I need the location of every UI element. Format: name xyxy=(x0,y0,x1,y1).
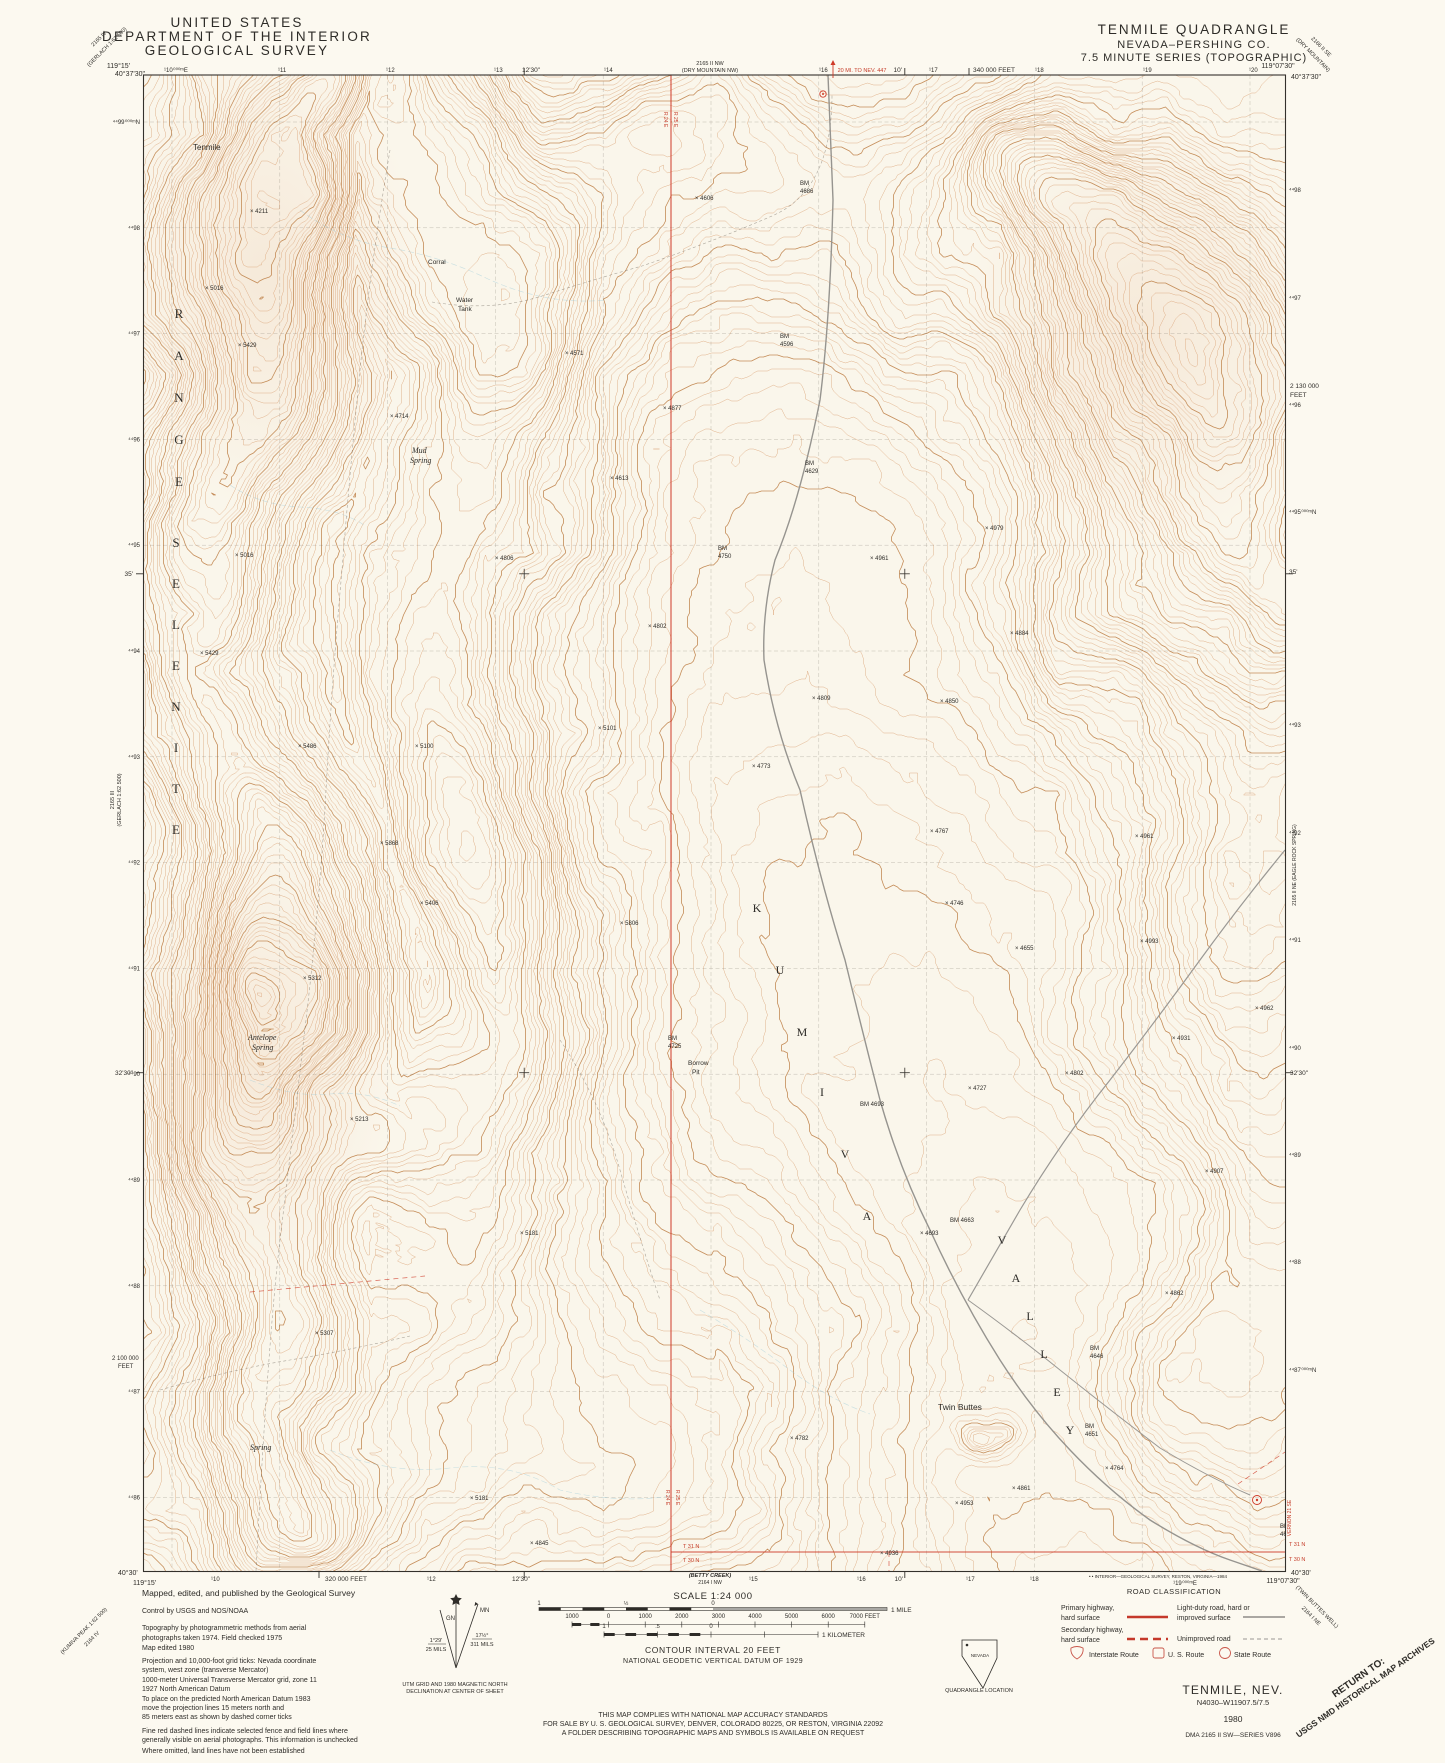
svg-text:¹16: ¹16 xyxy=(819,68,828,74)
svg-text:¹12: ¹12 xyxy=(427,1577,436,1583)
svg-text:4629: 4629 xyxy=(805,469,819,475)
svg-text:311 MILS: 311 MILS xyxy=(470,1642,493,1648)
svg-text:119°07'30": 119°07'30" xyxy=(1266,1577,1300,1585)
svg-text:Antelope: Antelope xyxy=(247,1033,277,1042)
svg-text:move the projection lines 15 m: move the projection lines 15 meters nort… xyxy=(142,1705,284,1712)
svg-text:UTM GRID AND 1980 MAGNETIC NOR: UTM GRID AND 1980 MAGNETIC NORTH xyxy=(402,1682,507,1688)
svg-text:Interstate Route: Interstate Route xyxy=(1089,1652,1139,1659)
svg-text:Mud: Mud xyxy=(411,446,428,455)
svg-text:340 000 FEET: 340 000 FEET xyxy=(973,67,1015,74)
svg-text:I: I xyxy=(820,1085,824,1099)
svg-text:State Route: State Route xyxy=(1234,1652,1271,1659)
svg-text:⁴⁴91: ⁴⁴91 xyxy=(128,965,140,972)
svg-text:A FOLDER DESCRIBING TOPOGRAPHI: A FOLDER DESCRIBING TOPOGRAPHIC MAPS AND… xyxy=(562,1730,865,1737)
svg-text:A: A xyxy=(1012,1271,1021,1285)
svg-text:L: L xyxy=(1026,1309,1033,1323)
svg-text:⁴⁴90: ⁴⁴90 xyxy=(1289,1045,1301,1052)
svg-text:× 5429: × 5429 xyxy=(238,343,257,349)
svg-text:• • INTERIOR—GEOLOGICAL SURVEY: • • INTERIOR—GEOLOGICAL SURVEY, RESTON, … xyxy=(1089,1574,1228,1579)
svg-text:4686: 4686 xyxy=(800,189,814,195)
svg-text:4651: 4651 xyxy=(1085,1432,1099,1438)
svg-text:Where omitted, land lines have: Where omitted, land lines have not been … xyxy=(142,1748,305,1755)
svg-text:DEPARTMENT OF THE INTERIOR: DEPARTMENT OF THE INTERIOR xyxy=(102,29,372,44)
svg-text:Tenmile: Tenmile xyxy=(193,143,221,152)
svg-text:× 4782: × 4782 xyxy=(790,1436,809,1442)
svg-text:× 5806: × 5806 xyxy=(620,921,639,927)
svg-text:32'30": 32'30" xyxy=(1290,1070,1309,1077)
svg-text:BM: BM xyxy=(780,334,789,340)
svg-text:¹17: ¹17 xyxy=(929,68,938,74)
svg-text:119°07'30": 119°07'30" xyxy=(1261,62,1295,70)
svg-text:2164 I NW: 2164 I NW xyxy=(698,1580,722,1586)
svg-text:¹12: ¹12 xyxy=(386,68,395,74)
svg-text:K: K xyxy=(753,901,762,915)
svg-text:2165 III: 2165 III xyxy=(110,790,116,809)
svg-text:35': 35' xyxy=(1289,569,1297,576)
svg-text:THIS MAP COMPLIES WITH NATIONA: THIS MAP COMPLIES WITH NATIONAL MAP ACCU… xyxy=(598,1712,828,1719)
svg-text:⁴⁴94: ⁴⁴94 xyxy=(128,648,140,655)
svg-text:BM: BM xyxy=(1085,1424,1094,1430)
svg-text:× 4979: × 4979 xyxy=(985,526,1004,532)
svg-text:I: I xyxy=(174,740,178,755)
svg-text:¹18: ¹18 xyxy=(1035,68,1044,74)
svg-text:E: E xyxy=(172,658,180,673)
svg-text:× 5429: × 5429 xyxy=(200,651,219,657)
svg-text:U: U xyxy=(776,963,785,977)
svg-text:× 4953: × 4953 xyxy=(955,1501,974,1507)
svg-text:× 4746: × 4746 xyxy=(945,901,964,907)
svg-text:Spring: Spring xyxy=(410,456,431,465)
svg-text:× 4606: × 4606 xyxy=(695,196,714,202)
svg-text:× 4907: × 4907 xyxy=(1205,1169,1224,1175)
svg-text:R 25 E: R 25 E xyxy=(672,112,678,128)
svg-text:× 4845: × 4845 xyxy=(530,1541,549,1547)
svg-text:generally visible on aerial ph: generally visible on aerial photographs.… xyxy=(142,1737,358,1744)
svg-text:× 5016: × 5016 xyxy=(235,553,254,559)
svg-text:1000: 1000 xyxy=(565,1614,579,1620)
svg-text:Primary highway,: Primary highway, xyxy=(1061,1605,1114,1612)
svg-text:119°15': 119°15' xyxy=(107,62,130,70)
svg-text:TENMILE QUADRANGLE: TENMILE QUADRANGLE xyxy=(1098,22,1291,37)
svg-text:V: V xyxy=(998,1233,1007,1247)
svg-text:Topography by photogrammetric: Topography by photogrammetric methods fr… xyxy=(142,1625,307,1632)
svg-text:2 130 000: 2 130 000 xyxy=(1290,383,1319,390)
svg-text:⁴⁴87 ⁰⁰⁰ᵐN: ⁴⁴87 ⁰⁰⁰ᵐN xyxy=(1289,1367,1316,1374)
svg-text:⁴⁴96: ⁴⁴96 xyxy=(1289,402,1301,409)
svg-text:S: S xyxy=(172,535,179,550)
svg-text:2165 II NE (EAGLE ROCK SPRING): 2165 II NE (EAGLE ROCK SPRING) xyxy=(1292,824,1298,906)
svg-text:× 5307: × 5307 xyxy=(315,1331,334,1337)
svg-text:T 30 N: T 30 N xyxy=(683,1558,699,1564)
svg-text:¹19: ¹19 xyxy=(1143,68,1152,74)
svg-text:× 4802: × 4802 xyxy=(1065,1071,1084,1077)
svg-text:× 4806: × 4806 xyxy=(495,556,514,562)
svg-text:17½°: 17½° xyxy=(476,1632,489,1639)
svg-text:E: E xyxy=(1053,1385,1060,1399)
svg-text:T 31 N: T 31 N xyxy=(683,1544,699,1550)
svg-text:× 4571: × 4571 xyxy=(565,351,584,357)
svg-text:T 31 N: T 31 N xyxy=(1289,1542,1305,1548)
svg-text:⁴⁴91: ⁴⁴91 xyxy=(1289,937,1301,944)
svg-text:(BETTY CREEK): (BETTY CREEK) xyxy=(689,1573,732,1579)
svg-text:10': 10' xyxy=(895,1576,903,1583)
svg-text:⁴⁴88: ⁴⁴88 xyxy=(1289,1259,1301,1266)
svg-text:Twin Buttes: Twin Buttes xyxy=(938,1402,982,1412)
svg-text:¹14: ¹14 xyxy=(604,68,613,74)
svg-text:× 4961: × 4961 xyxy=(1135,834,1154,840)
svg-text:⁴⁴97: ⁴⁴97 xyxy=(1289,295,1301,302)
svg-text:⁴⁴96: ⁴⁴96 xyxy=(128,436,140,443)
svg-text:× 5101: × 5101 xyxy=(598,726,617,732)
svg-text:photographs taken 1974. Fiel: photographs taken 1974. Field checked 19… xyxy=(142,1635,282,1642)
svg-text:¹11: ¹11 xyxy=(278,68,287,74)
svg-text:1000-meter Universal Transvers: 1000-meter Universal Transverse Mercator… xyxy=(142,1677,317,1684)
svg-text:GEOLOGICAL SURVEY: GEOLOGICAL SURVEY xyxy=(145,43,329,58)
svg-text:Borrow: Borrow xyxy=(688,1060,709,1067)
svg-text:× 5016: × 5016 xyxy=(205,286,224,292)
svg-text:Tank: Tank xyxy=(458,306,472,313)
svg-text:QUADRANGLE LOCATION: QUADRANGLE LOCATION xyxy=(945,1688,1013,1694)
svg-text:× 5213: × 5213 xyxy=(350,1117,369,1123)
svg-text:2165 II NW: 2165 II NW xyxy=(696,61,724,67)
svg-text:NEVADA–PERSHING CO.: NEVADA–PERSHING CO. xyxy=(1117,39,1270,51)
svg-text:× 4961: × 4961 xyxy=(870,556,889,562)
svg-text:N: N xyxy=(174,390,184,405)
svg-text:L: L xyxy=(172,617,180,632)
svg-text:× 4211: × 4211 xyxy=(250,209,269,215)
svg-text:MN: MN xyxy=(480,1608,489,1614)
svg-text:¹17: ¹17 xyxy=(966,1577,975,1583)
svg-text:⁴⁴93: ⁴⁴93 xyxy=(128,754,140,761)
svg-text:Y: Y xyxy=(1066,1423,1075,1437)
svg-text:× 5181: × 5181 xyxy=(470,1496,489,1502)
svg-text:BM: BM xyxy=(1090,1346,1099,1352)
svg-text:× 4714: × 4714 xyxy=(390,414,409,420)
svg-text:A: A xyxy=(174,348,184,363)
svg-text:⁴⁴97: ⁴⁴97 xyxy=(128,331,140,338)
svg-text:× 4962: × 4962 xyxy=(1255,1006,1274,1012)
svg-text:× 4693: × 4693 xyxy=(920,1231,939,1237)
svg-text:⁴⁴86: ⁴⁴86 xyxy=(128,1494,140,1501)
svg-text:FOR SALE BY U. S. GEOLOGICAL S: FOR SALE BY U. S. GEOLOGICAL SURVEY, DEN… xyxy=(543,1721,883,1728)
svg-text:× 4884: × 4884 xyxy=(1010,631,1029,637)
svg-text:U. S. Route: U. S. Route xyxy=(1168,1652,1204,1659)
svg-text:FEET: FEET xyxy=(1290,392,1307,399)
svg-text:L: L xyxy=(1040,1347,1047,1361)
svg-text:¹10: ¹10 xyxy=(211,1577,220,1583)
svg-text:¹13: ¹13 xyxy=(494,68,503,74)
svg-text:BM: BM xyxy=(668,1036,677,1042)
svg-text:NEVADA: NEVADA xyxy=(971,1653,989,1658)
svg-text:TENMILE, NEV.: TENMILE, NEV. xyxy=(1182,1683,1283,1697)
svg-text:Mapped, edited, and published: Mapped, edited, and published by the Geo… xyxy=(142,1588,356,1598)
svg-text:Unimproved road: Unimproved road xyxy=(1177,1636,1231,1643)
svg-text:1 MILE: 1 MILE xyxy=(891,1607,912,1614)
svg-text:× 4861: × 4861 xyxy=(1012,1486,1031,1492)
svg-text:¹18: ¹18 xyxy=(1030,1577,1039,1583)
svg-text:12'30": 12'30" xyxy=(522,67,541,74)
svg-text:Water: Water xyxy=(456,297,474,304)
svg-text:.5: .5 xyxy=(655,1624,660,1630)
svg-text:4646: 4646 xyxy=(1090,1354,1104,1360)
svg-text:× 4613: × 4613 xyxy=(610,476,629,482)
svg-text:NATIONAL GEODETIC VERTICAL DAT: NATIONAL GEODETIC VERTICAL DATUM OF 1929 xyxy=(623,1658,803,1665)
svg-text:40°30': 40°30' xyxy=(118,1569,138,1577)
svg-text:⁴⁴89: ⁴⁴89 xyxy=(1289,1152,1301,1159)
svg-text:Spring: Spring xyxy=(250,1443,271,1452)
svg-text:⁴⁴95 ⁰⁰⁰ᵐN: ⁴⁴95 ⁰⁰⁰ᵐN xyxy=(1289,509,1316,516)
svg-text:× 4877: × 4877 xyxy=(663,406,682,412)
svg-text:× 4931: × 4931 xyxy=(1172,1036,1191,1042)
svg-text:7000 FEET: 7000 FEET xyxy=(850,1614,881,1620)
svg-text:G: G xyxy=(174,432,183,447)
svg-text:40°30': 40°30' xyxy=(1291,1569,1311,1577)
svg-text:UNITED STATES: UNITED STATES xyxy=(170,15,303,30)
svg-text:R 24 E: R 24 E xyxy=(662,112,668,128)
svg-text:DMA 2165 II SW—SERIES V896: DMA 2165 II SW—SERIES V896 xyxy=(1185,1732,1281,1739)
svg-text:10': 10' xyxy=(894,67,902,74)
svg-text:E: E xyxy=(175,474,183,489)
svg-text:To place on the predicted Nort: To place on the predicted North American… xyxy=(142,1696,311,1703)
svg-text:BM: BM xyxy=(800,181,809,187)
svg-text:ROAD CLASSIFICATION: ROAD CLASSIFICATION xyxy=(1127,1587,1221,1596)
svg-text:¹19 ⁰⁰⁰ᵐE: ¹19 ⁰⁰⁰ᵐE xyxy=(1173,1580,1197,1587)
svg-text:4000: 4000 xyxy=(748,1614,762,1620)
svg-text:2 100 000: 2 100 000 xyxy=(112,1356,139,1362)
svg-text:E: E xyxy=(172,822,180,837)
svg-text:BM 4663: BM 4663 xyxy=(950,1218,975,1224)
svg-text:× 4764: × 4764 xyxy=(1105,1466,1124,1472)
svg-text:119°15': 119°15' xyxy=(133,1579,156,1587)
svg-text:A: A xyxy=(863,1209,872,1223)
svg-text:CONTOUR INTERVAL 20 FEET: CONTOUR INTERVAL 20 FEET xyxy=(645,1645,781,1655)
svg-text:1000: 1000 xyxy=(639,1614,653,1620)
svg-text:12'30": 12'30" xyxy=(512,1576,531,1583)
svg-text:R 24 E: R 24 E xyxy=(664,1490,670,1506)
svg-text:R 25 E: R 25 E xyxy=(674,1490,680,1506)
svg-text:⁴⁴87: ⁴⁴87 xyxy=(128,1389,140,1396)
svg-text:½: ½ xyxy=(624,1600,629,1607)
svg-text:× 4802: × 4802 xyxy=(648,624,667,630)
svg-text:improved surface: improved surface xyxy=(1177,1615,1231,1622)
svg-text:2000: 2000 xyxy=(675,1614,689,1620)
svg-text:VERNON 21 SE: VERNON 21 SE xyxy=(1287,1499,1293,1536)
svg-text:4596: 4596 xyxy=(780,342,794,348)
svg-text:Projection and 10,000-foot gri: Projection and 10,000-foot grid ticks: N… xyxy=(142,1658,316,1665)
svg-text:1980: 1980 xyxy=(1224,1714,1243,1724)
svg-text:25 MILS: 25 MILS xyxy=(426,1647,447,1653)
svg-text:Map edited 1980: Map edited 1980 xyxy=(142,1645,194,1652)
svg-text:T: T xyxy=(172,781,180,796)
svg-text:× 5100: × 5100 xyxy=(415,744,434,750)
svg-text:× 5312: × 5312 xyxy=(303,976,322,982)
svg-text:BM 4693: BM 4693 xyxy=(860,1102,885,1108)
svg-text:Secondary highway,: Secondary highway, xyxy=(1061,1627,1124,1634)
svg-text:(DRY MOUNTAIN NW): (DRY MOUNTAIN NW) xyxy=(682,68,738,74)
svg-text:4750: 4750 xyxy=(718,554,732,560)
svg-text:20 MI. TO NEV. 447: 20 MI. TO NEV. 447 xyxy=(838,68,887,74)
svg-text:hard surface: hard surface xyxy=(1061,1637,1100,1644)
svg-text:V: V xyxy=(841,1147,850,1161)
svg-text:85 meters east as shown by das: 85 meters east as shown by dashed corner… xyxy=(142,1714,292,1721)
svg-text:× 4936: × 4936 xyxy=(880,1551,899,1557)
svg-text:(GERLACH 1:62 500): (GERLACH 1:62 500) xyxy=(117,773,123,826)
svg-text:× 4993: × 4993 xyxy=(1140,939,1159,945)
svg-text:320 000 FEET: 320 000 FEET xyxy=(325,1576,367,1583)
svg-text:× 4767: × 4767 xyxy=(930,829,949,835)
svg-text:Control by USGS and NOS/NOAA: Control by USGS and NOS/NOAA xyxy=(142,1608,249,1615)
svg-text:1927 North American Datum: 1927 North American Datum xyxy=(142,1686,230,1693)
svg-text:hard surface: hard surface xyxy=(1061,1615,1100,1622)
svg-text:¹20: ¹20 xyxy=(1249,68,1258,74)
svg-text:× 4809: × 4809 xyxy=(812,696,831,702)
svg-text:× 4850: × 4850 xyxy=(940,699,959,705)
svg-text:6000: 6000 xyxy=(822,1614,836,1620)
svg-text:GN: GN xyxy=(446,1616,455,1622)
svg-text:35': 35' xyxy=(125,571,133,578)
svg-text:⁴⁴93: ⁴⁴93 xyxy=(1289,722,1301,729)
svg-text:¹16: ¹16 xyxy=(857,1577,866,1583)
svg-text:R: R xyxy=(175,306,184,321)
svg-text:3000: 3000 xyxy=(712,1614,726,1620)
svg-text:4725: 4725 xyxy=(668,1044,682,1050)
svg-text:× 4655: × 4655 xyxy=(1015,946,1034,952)
svg-text:⁴⁴98: ⁴⁴98 xyxy=(128,225,140,232)
svg-text:× 5181: × 5181 xyxy=(520,1231,539,1237)
svg-text:40°37'30": 40°37'30" xyxy=(115,70,145,78)
svg-text:Spring: Spring xyxy=(252,1043,273,1052)
svg-text:1°29': 1°29' xyxy=(430,1638,442,1644)
svg-text:Pit: Pit xyxy=(692,1069,700,1076)
svg-text:system, west zone (transverse: system, west zone (transverse Mercator) xyxy=(142,1667,268,1674)
svg-text:E: E xyxy=(172,576,180,591)
svg-text:⁴⁴99 ⁰⁰⁰ᵐN: ⁴⁴99 ⁰⁰⁰ᵐN xyxy=(113,119,140,126)
svg-text:N4030–W11907.5/7.5: N4030–W11907.5/7.5 xyxy=(1197,1698,1269,1707)
svg-text:× 4862: × 4862 xyxy=(1165,1291,1184,1297)
svg-text:Light-duty road, hard or: Light-duty road, hard or xyxy=(1177,1605,1250,1612)
svg-text:BM: BM xyxy=(805,461,814,467)
svg-text:× 5406: × 5406 xyxy=(420,901,439,907)
svg-text:× 4773: × 4773 xyxy=(752,764,771,770)
svg-text:⁴⁴98: ⁴⁴98 xyxy=(1289,187,1301,194)
svg-text:N: N xyxy=(171,699,181,714)
svg-text:⁴⁴95: ⁴⁴95 xyxy=(128,542,140,549)
svg-text:T 30 N: T 30 N xyxy=(1289,1557,1305,1563)
svg-text:FEET: FEET xyxy=(118,1364,134,1370)
svg-text:⁴⁴89: ⁴⁴89 xyxy=(128,1177,140,1184)
svg-text:DECLINATION AT CENTER OF SHEET: DECLINATION AT CENTER OF SHEET xyxy=(406,1689,504,1695)
svg-text:5000: 5000 xyxy=(785,1614,799,1620)
svg-text:BM: BM xyxy=(718,546,727,552)
svg-text:1 KILOMETER: 1 KILOMETER xyxy=(822,1632,865,1639)
svg-text:× 4727: × 4727 xyxy=(968,1086,987,1092)
svg-text:× 5486: × 5486 xyxy=(298,744,317,750)
svg-text:Corral: Corral xyxy=(428,259,446,266)
svg-text:¹10 ⁰⁰⁰ᵐE: ¹10 ⁰⁰⁰ᵐE xyxy=(164,67,188,74)
svg-text:Fine red dashed lines indicate: Fine red dashed lines indicate selected … xyxy=(142,1728,348,1735)
svg-text:40°37'30": 40°37'30" xyxy=(1291,73,1321,81)
svg-text:× 5868: × 5868 xyxy=(380,841,399,847)
svg-text:M: M xyxy=(797,1025,808,1039)
svg-text:32'30": 32'30" xyxy=(115,1070,134,1077)
svg-text:⁴⁴92: ⁴⁴92 xyxy=(128,860,140,867)
svg-text:¹15: ¹15 xyxy=(749,1577,758,1583)
svg-text:⁴⁴88: ⁴⁴88 xyxy=(128,1283,140,1290)
